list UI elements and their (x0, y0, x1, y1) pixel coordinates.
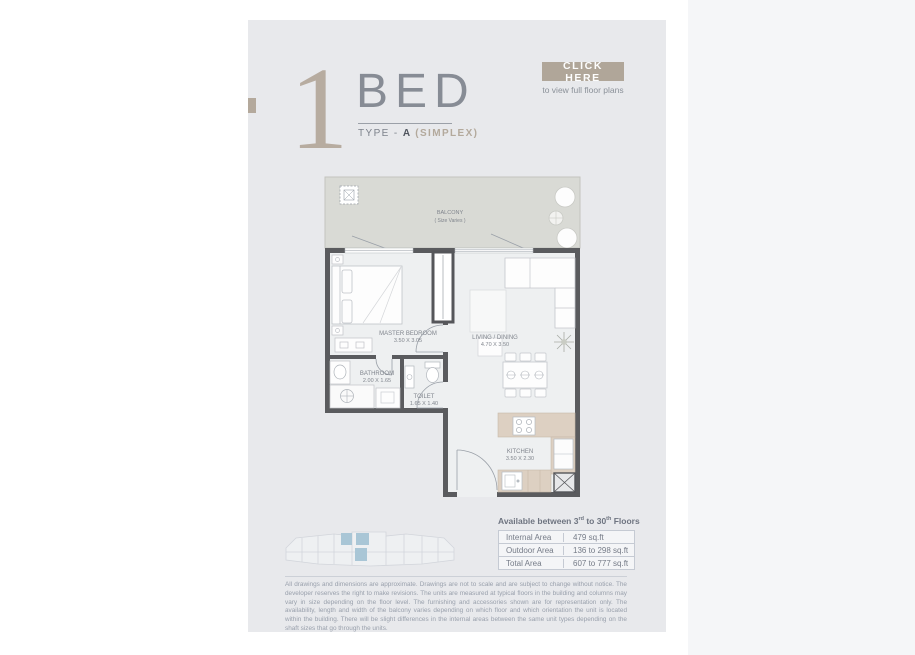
floor-plan: BALCONY ( Size Varies ) (318, 170, 588, 505)
area-label: Outdoor Area (499, 546, 563, 555)
type-suffix: (SIMPLEX) (411, 128, 478, 139)
click-here-caption: to view full floor plans (512, 85, 654, 95)
page: 1 BED TYPE - A (SIMPLEX) CLICK HERE to v… (0, 0, 915, 655)
table-row: Outdoor Area 136 to 298 sq.ft (499, 543, 634, 556)
fridge (554, 439, 573, 469)
disclaimer-text: All drawings and dimensions are approxim… (285, 581, 627, 634)
bedroom-label: MASTER BEDROOM (379, 331, 437, 337)
bathroom-dims: 2.00 X 1.65 (363, 378, 391, 384)
bathroom-label: BATHROOM (360, 371, 394, 377)
click-here-button[interactable]: CLICK HERE (542, 62, 624, 81)
living-dims: 4.70 X 3.50 (481, 342, 509, 348)
unit-count: 1 (286, 46, 352, 171)
bedroom-dims: 3.50 X 3.05 (394, 338, 422, 344)
balcony-note: ( Size Varies ) (434, 218, 465, 224)
plant-icon (554, 332, 574, 352)
brochure-panel: 1 BED TYPE - A (SIMPLEX) CLICK HERE to v… (248, 20, 666, 632)
stove (513, 417, 535, 435)
balcony-table-icon (549, 211, 563, 225)
kitchen-dims: 3.50 X 2.30 (506, 456, 534, 462)
vanity (330, 361, 350, 384)
ac-unit-icon (340, 186, 358, 204)
availability-text: to 30 (584, 516, 606, 526)
area-value: 136 to 298 sq.ft (563, 546, 634, 555)
toilet-sink (405, 366, 414, 388)
divider (285, 576, 627, 577)
area-table: Internal Area 479 sq.ft Outdoor Area 136… (498, 530, 635, 570)
shaft (554, 473, 575, 492)
type-prefix: TYPE - (358, 128, 403, 139)
background-band (688, 0, 915, 655)
balcony-label: BALCONY (437, 210, 464, 216)
availability-heading: Available between 3rd to 30th Floors (498, 516, 640, 526)
page-title: BED (356, 68, 476, 116)
toilet-label: TOILET (414, 394, 435, 400)
dresser (335, 338, 372, 352)
area-label: Total Area (499, 559, 563, 568)
availability-text: Available between 3 (498, 516, 578, 526)
area-value: 479 sq.ft (563, 533, 634, 542)
keyplan-outline (286, 532, 454, 566)
table-row: Internal Area 479 sq.ft (499, 531, 634, 543)
dining-table (503, 353, 547, 397)
availability-text: Floors (611, 516, 639, 526)
kitchen-label: KITCHEN (507, 449, 533, 455)
kitchen-sink (502, 472, 522, 490)
rug (470, 290, 506, 332)
living-label: LIVING / DINING (472, 335, 518, 341)
bed (332, 266, 402, 324)
area-value: 607 to 777 sq.ft (563, 559, 634, 568)
area-label: Internal Area (499, 533, 563, 542)
balcony: BALCONY ( Size Varies ) (325, 177, 580, 251)
wc (425, 362, 440, 383)
title-underline (358, 123, 452, 124)
wardrobe (433, 252, 453, 322)
edge-tab (248, 98, 256, 113)
type-letter: A (403, 128, 411, 139)
shower (330, 385, 374, 408)
bath-counter (376, 388, 400, 408)
unit-type: TYPE - A (SIMPLEX) (358, 128, 478, 139)
toilet-dims: 1.65 X 1.40 (410, 401, 438, 407)
keyplan (282, 526, 458, 572)
table-row: Total Area 607 to 777 sq.ft (499, 556, 634, 569)
